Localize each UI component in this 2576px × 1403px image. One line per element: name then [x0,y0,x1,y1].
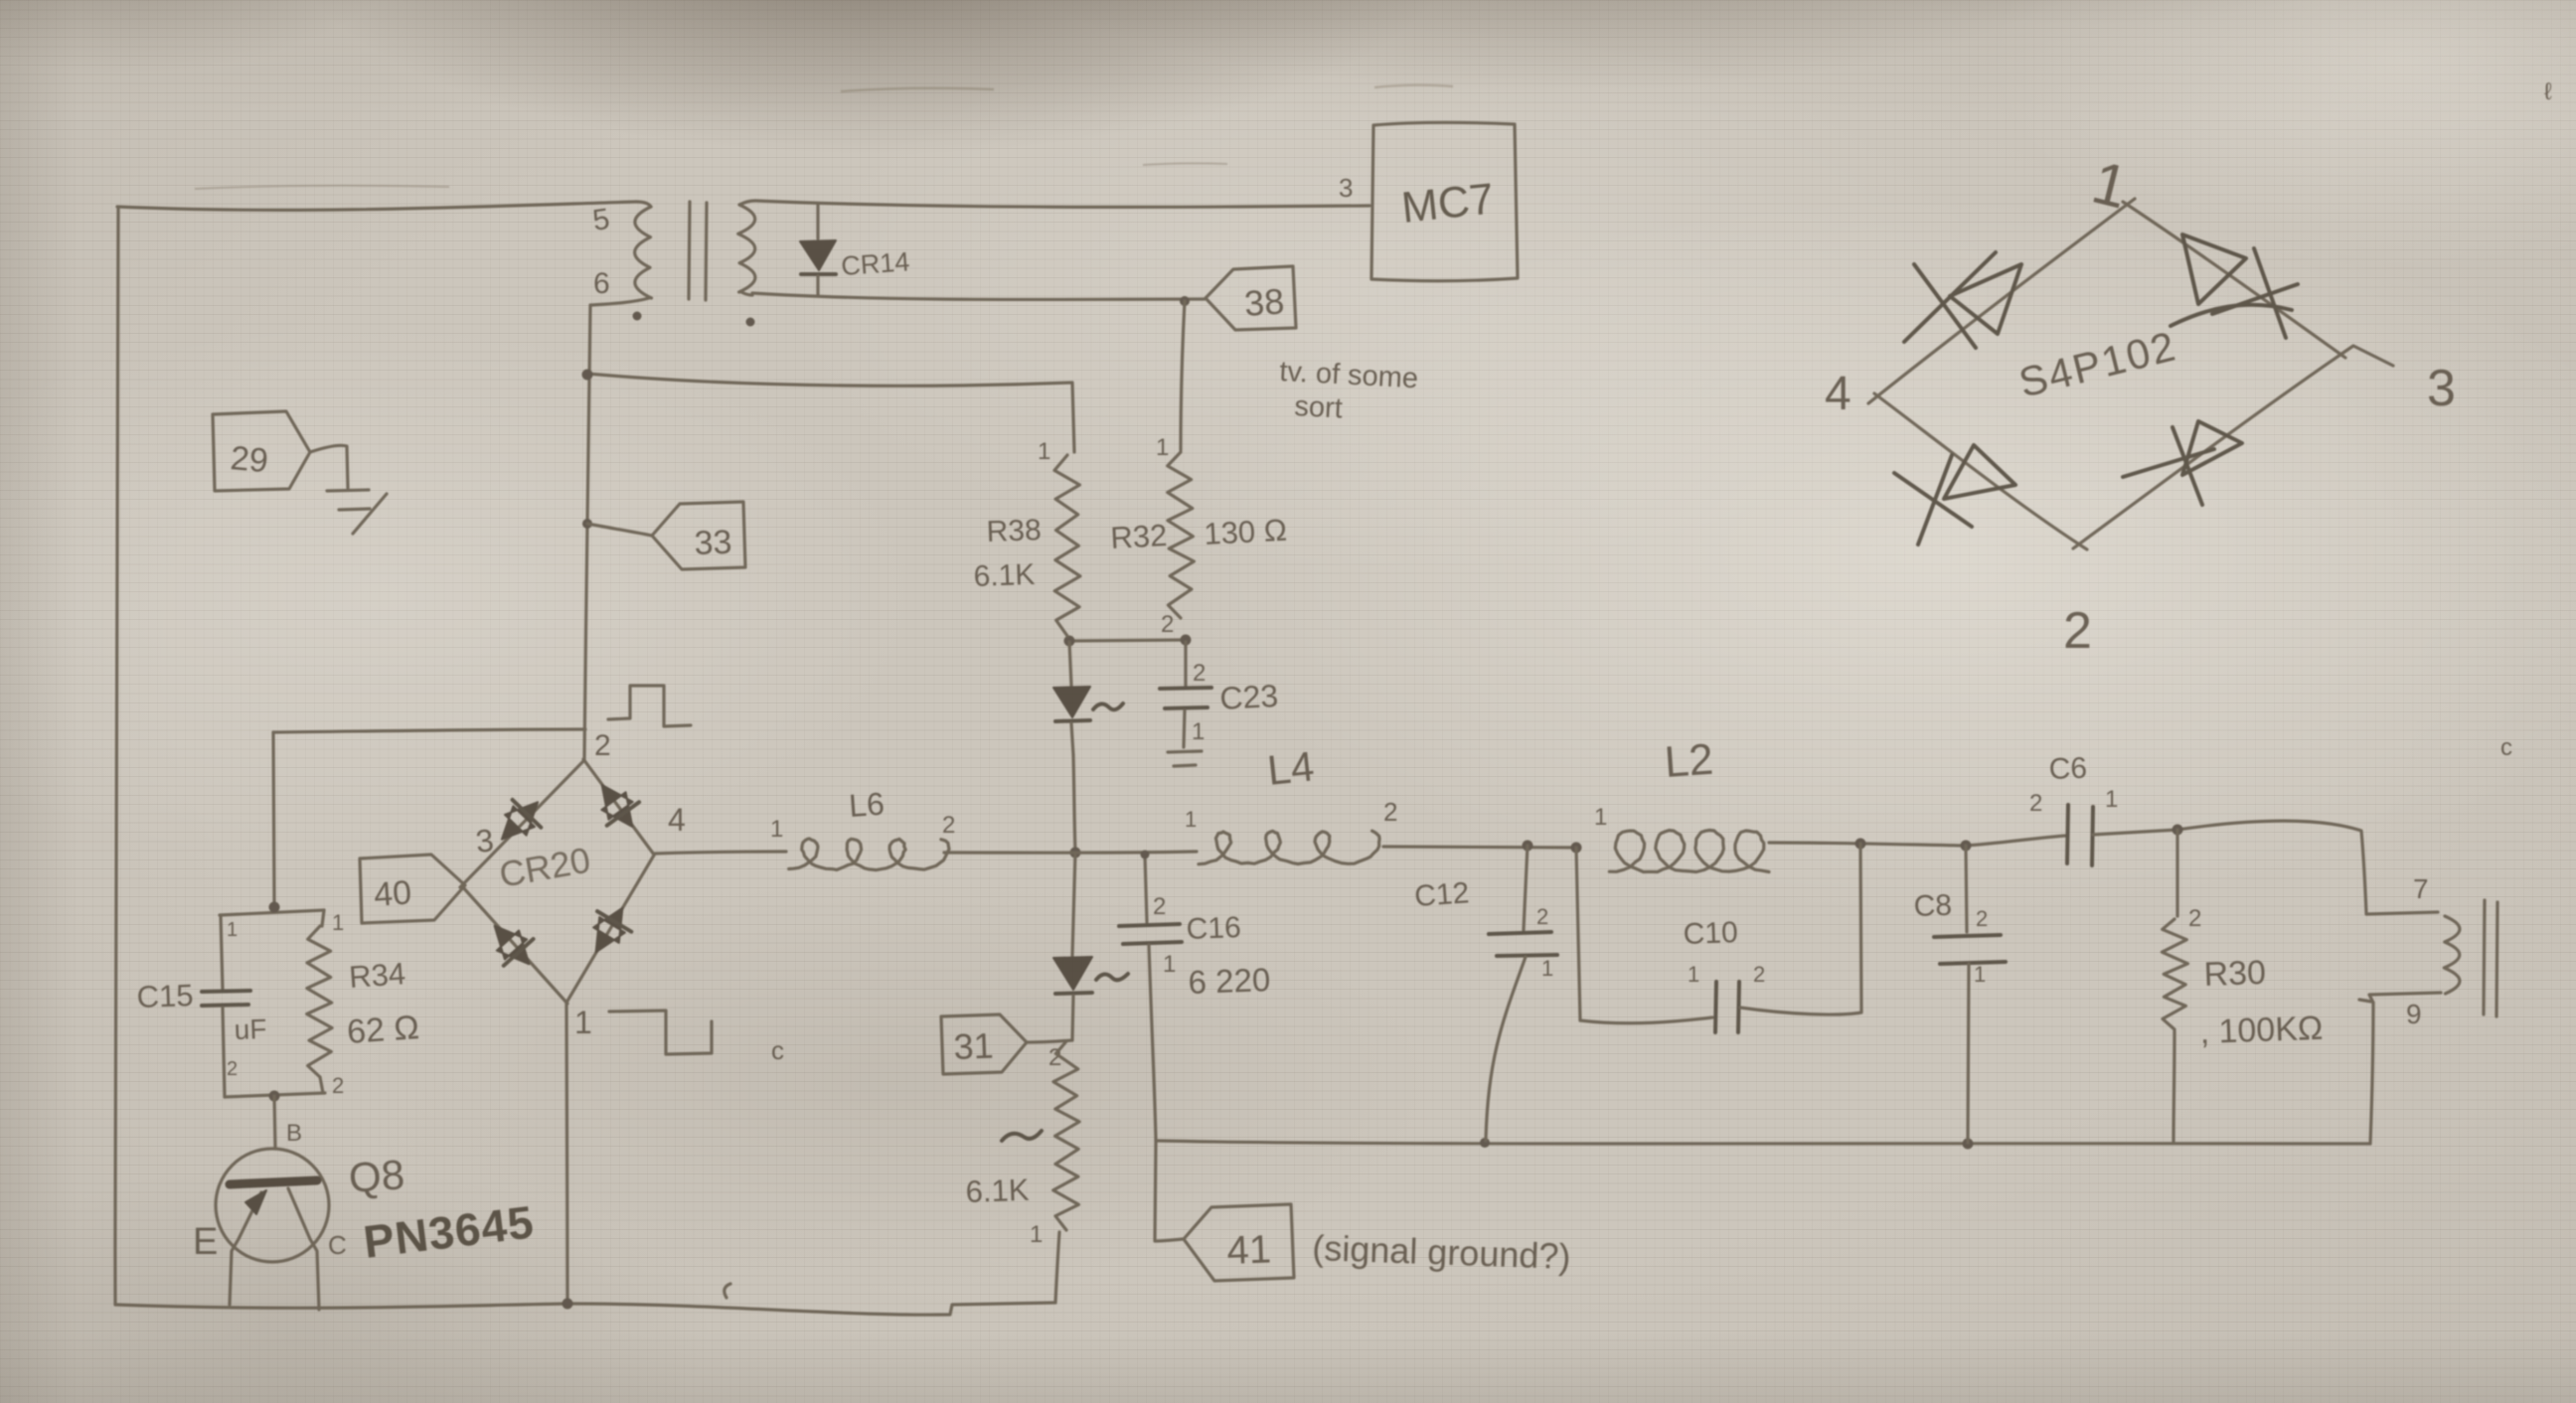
svg-text:4: 4 [668,802,686,838]
svg-text:1: 1 [332,910,344,935]
svg-text:L4: L4 [1265,742,1316,794]
svg-text:6.1K: 6.1K [965,1172,1030,1209]
svg-text:1: 1 [1163,951,1176,978]
svg-text:R30: R30 [2203,954,2267,994]
svg-text:1: 1 [1156,434,1169,461]
svg-text:C16: C16 [1186,911,1241,946]
svg-text:L6: L6 [848,786,885,824]
svg-text:1: 1 [1688,962,1699,987]
svg-text:MC7: MC7 [1399,175,1497,233]
svg-text:3: 3 [1339,173,1353,203]
svg-text:1: 1 [1030,1221,1043,1248]
svg-text:C12: C12 [1413,876,1470,913]
svg-text:5: 5 [590,203,611,237]
svg-text:31: 31 [953,1025,994,1067]
svg-text:6 220: 6 220 [1188,961,1271,1001]
svg-text:R34: R34 [348,956,406,995]
svg-text:CR14: CR14 [840,246,910,281]
svg-text:R32: R32 [1110,518,1169,555]
svg-text:130 Ω: 130 Ω [1204,513,1288,551]
svg-text:6.1K: 6.1K [973,558,1036,593]
svg-text:2: 2 [1193,660,1206,687]
svg-text:29: 29 [229,439,269,480]
svg-text:2: 2 [1383,797,1397,827]
svg-text:S4P102: S4P102 [2014,322,2181,406]
svg-text:2: 2 [1153,893,1166,920]
svg-text:1: 1 [227,919,238,941]
svg-text:33: 33 [694,524,732,562]
svg-text:2: 2 [2063,602,2092,660]
svg-text:40: 40 [373,873,412,914]
svg-text:E: E [193,1221,218,1263]
svg-text:1: 1 [770,816,783,843]
svg-text:3: 3 [2427,360,2456,417]
svg-text:1: 1 [1038,438,1050,465]
svg-text:1: 1 [574,1005,592,1040]
svg-text:38: 38 [1243,280,1286,324]
svg-text:, 100KΩ: , 100KΩ [2199,1010,2324,1051]
svg-text:41: 41 [1226,1227,1272,1273]
svg-text:uF: uF [234,1013,267,1045]
svg-text:2: 2 [227,1058,238,1080]
svg-text:2: 2 [594,729,611,762]
svg-text:ℓ: ℓ [2544,78,2552,105]
svg-text:c: c [2500,734,2512,761]
svg-text:tv. of some: tv. of some [1279,356,1419,394]
svg-text:R38: R38 [986,514,1042,548]
svg-text:C10: C10 [1683,916,1738,951]
svg-text:CR20: CR20 [496,840,593,895]
svg-text:2: 2 [942,812,955,839]
svg-text:B: B [286,1120,302,1147]
svg-text:2: 2 [1161,611,1174,638]
svg-text:62 Ω: 62 Ω [346,1009,420,1051]
svg-text:Q8: Q8 [347,1151,405,1201]
svg-text:2: 2 [332,1073,344,1098]
svg-text:C6: C6 [2048,752,2087,786]
svg-text:sort: sort [1294,390,1344,424]
svg-text:1: 1 [1185,807,1197,832]
svg-text:(signal ground?): (signal ground?) [1312,1227,1571,1277]
svg-text:2: 2 [1753,962,1765,987]
svg-text:2: 2 [2029,790,2042,817]
svg-text:2: 2 [1976,906,1988,931]
svg-text:1: 1 [1974,962,1986,987]
svg-text:1: 1 [2105,786,2118,813]
svg-text:c: c [771,1035,784,1065]
svg-text:C: C [328,1230,347,1260]
svg-text:L2: L2 [1663,735,1714,787]
svg-text:C15: C15 [136,978,194,1014]
svg-text:2: 2 [1536,904,1548,929]
svg-text:C8: C8 [1913,889,1952,923]
svg-text:7: 7 [2413,873,2429,904]
svg-text:6: 6 [593,267,610,300]
svg-text:PN3645: PN3645 [361,1195,537,1268]
svg-text:4: 4 [1825,368,1851,420]
svg-text:9: 9 [2406,999,2422,1029]
svg-text:2: 2 [2188,905,2201,932]
svg-text:1: 1 [1594,804,1607,831]
svg-text:C23: C23 [1218,678,1279,716]
svg-text:3: 3 [474,822,495,859]
svg-text:1: 1 [1541,956,1553,981]
svg-text:1: 1 [1192,718,1205,745]
svg-text:1: 1 [2086,149,2135,222]
